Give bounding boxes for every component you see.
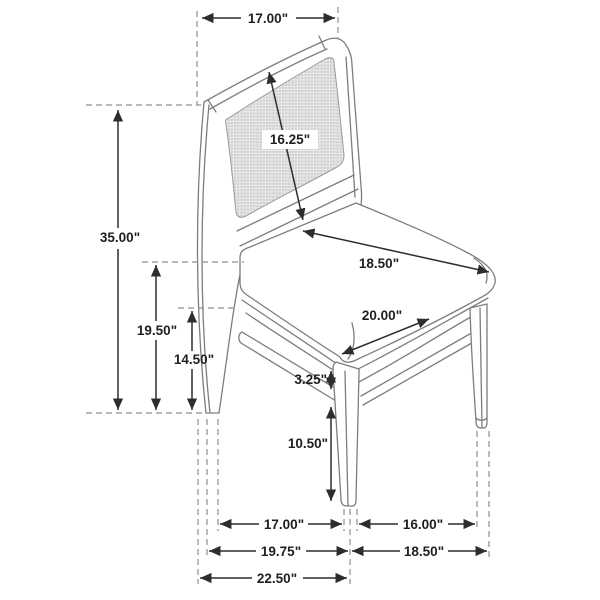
dim-front-leg-span-label: 17.00" (264, 517, 304, 532)
dim-front-span-outer: 19.75" (209, 544, 348, 559)
dim-side-span-outer: 18.50" (352, 544, 487, 559)
dim-front-span-outer-label: 19.75" (261, 544, 301, 559)
chair-rear-leg (470, 304, 487, 428)
diagram-canvas: 17.00" 35.00" 19.50" 14.50" 16.25" (0, 0, 600, 600)
dim-stretcher-height-label: 14.50" (174, 352, 214, 367)
dim-leg-height-label: 10.50" (288, 436, 328, 451)
dim-leg-height: 10.50" (288, 407, 331, 501)
dim-overall-height-label: 35.00" (100, 230, 140, 245)
dim-overall-height: 35.00" (100, 110, 140, 410)
dim-apron-gap-label: 3.25" (294, 372, 327, 387)
dim-seat-depth-label: 18.50" (359, 256, 399, 271)
dim-apron-gap: 3.25" (294, 371, 331, 389)
dim-back-width: 17.00" (202, 11, 335, 26)
dim-side-span-outer-label: 18.50" (404, 544, 444, 559)
dim-overall-depth: 22.50" (200, 571, 347, 586)
chair-dimension-diagram: 17.00" 35.00" 19.50" 14.50" 16.25" (0, 0, 600, 600)
dim-seat-back-height: 19.50" (137, 265, 177, 410)
dim-front-leg-span: 17.00" (220, 517, 342, 532)
dim-overall-depth-label: 22.50" (257, 571, 297, 586)
chair-drawing (197, 36, 495, 506)
dim-side-leg-span: 16.00" (359, 517, 475, 532)
dim-back-width-label: 17.00" (248, 11, 288, 26)
dim-side-leg-span-label: 16.00" (403, 517, 443, 532)
dim-back-panel-label: 16.25" (270, 132, 310, 147)
dim-seat-width-label: 20.00" (362, 308, 402, 323)
dim-seat-back-height-label: 19.50" (137, 323, 177, 338)
